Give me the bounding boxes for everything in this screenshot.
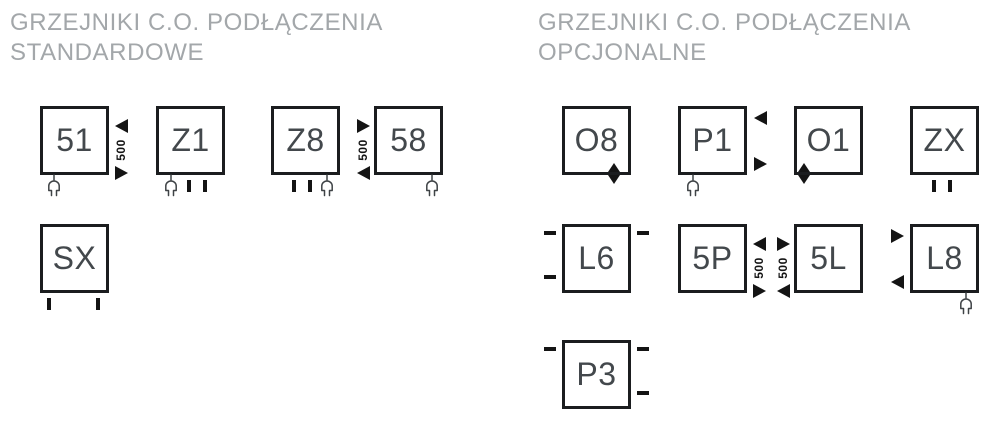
box-zx-label: ZX (924, 122, 966, 159)
dimension-value: 500 (774, 254, 792, 281)
optional-title-line1: GRZEJNIKI C.O. PODŁĄCZENIA (538, 8, 911, 38)
dimension-marker-500: 500 (774, 237, 792, 298)
box-5l-label: 5L (810, 240, 847, 277)
updown-arrows (798, 163, 810, 184)
arrow-left-icon (777, 284, 790, 298)
radiator-outline: P1 (678, 106, 747, 175)
connection-tick (932, 180, 936, 192)
box-l6: L6 (562, 224, 631, 293)
arrow-right-icon (777, 237, 790, 251)
dimension-marker-500: 500 (112, 119, 130, 180)
arrow-left-icon (891, 275, 904, 289)
dimension-value: 500 (112, 136, 130, 163)
side-connection-tick (637, 347, 649, 351)
arrow-left-icon (753, 237, 766, 251)
box-5l: 5L 500 (794, 224, 863, 293)
side-connection-tick (544, 231, 556, 235)
radiator-connections-diagram: { "titles": { "standard": { "line1": "GR… (0, 0, 1000, 435)
box-sx: SX (40, 224, 109, 293)
box-o8-label: O8 (575, 122, 619, 159)
arrow-right-icon (891, 229, 904, 243)
box-z1-label: Z1 (171, 122, 209, 159)
connection-tick (292, 180, 296, 192)
arrow-up-icon (608, 163, 620, 172)
arrow-left-icon (754, 111, 767, 125)
connection-tick (47, 298, 51, 310)
side-connection-tick (637, 391, 649, 395)
standard-title-line1: GRZEJNIKI C.O. PODŁĄCZENIA (10, 8, 383, 38)
box-58: 58 500 (374, 106, 443, 175)
connection-tick (203, 180, 207, 192)
arrow-left-icon (357, 166, 370, 180)
dimension-value: 500 (750, 254, 768, 281)
standard-title-line2: STANDARDOWE (10, 38, 383, 68)
arrow-down-icon (608, 175, 620, 184)
plug-icon (683, 174, 703, 197)
box-5p: 5P 500 (678, 224, 747, 293)
box-z1: Z1 (156, 106, 225, 175)
connection-tick (96, 298, 100, 310)
radiator-outline: 5P (678, 224, 747, 293)
arrow-right-icon (357, 119, 370, 133)
radiator-outline: 5L (794, 224, 863, 293)
box-zx: ZX (910, 106, 979, 175)
dimension-marker-500: 500 (354, 119, 372, 180)
radiator-outline: O8 (562, 106, 631, 175)
box-o1-label: O1 (807, 122, 851, 159)
radiator-outline: ZX (910, 106, 979, 175)
box-5p-label: 5P (692, 240, 732, 277)
radiator-outline: Z1 (156, 106, 225, 175)
arrow-right-icon (754, 157, 767, 171)
plug-icon (422, 174, 442, 197)
arrow-right-icon (115, 166, 128, 180)
box-p1: P1 (678, 106, 747, 175)
connection-tick (948, 180, 952, 192)
updown-arrows (608, 163, 620, 184)
box-l8-label: L8 (926, 240, 963, 277)
radiator-outline: L6 (562, 224, 631, 293)
dimension-marker-500: 500 (750, 237, 768, 298)
box-z8: Z8 (271, 106, 340, 175)
box-l8: L8 (910, 224, 979, 293)
dimension-value: 500 (354, 136, 372, 163)
plug-icon (317, 174, 337, 197)
box-o1: O1 (794, 106, 863, 175)
box-p3-label: P3 (576, 356, 616, 393)
box-58-label: 58 (390, 122, 427, 159)
box-51: 51 500 (40, 106, 109, 175)
box-l6-label: L6 (578, 240, 615, 277)
box-z8-label: Z8 (286, 122, 324, 159)
plug-icon (161, 174, 181, 197)
optional-section-title: GRZEJNIKI C.O. PODŁĄCZENIA OPCJONALNE (538, 8, 911, 68)
side-connection-tick (637, 231, 649, 235)
plug-icon (956, 292, 976, 315)
connection-tick (187, 180, 191, 192)
arrow-up-icon (798, 163, 810, 172)
radiator-outline: 58 (374, 106, 443, 175)
arrow-left-icon (115, 119, 128, 133)
radiator-outline: Z8 (271, 106, 340, 175)
plug-icon (44, 174, 64, 197)
radiator-outline: 51 (40, 106, 109, 175)
standard-section-title: GRZEJNIKI C.O. PODŁĄCZENIA STANDARDOWE (10, 8, 383, 68)
box-p1-label: P1 (692, 122, 732, 159)
box-51-label: 51 (56, 122, 93, 159)
arrow-down-icon (798, 175, 810, 184)
side-connection-tick (544, 347, 556, 351)
box-p3: P3 (562, 340, 631, 409)
radiator-outline: SX (40, 224, 109, 293)
radiator-outline: L8 (910, 224, 979, 293)
radiator-outline: P3 (562, 340, 631, 409)
box-o8: O8 (562, 106, 631, 175)
side-connection-tick (544, 275, 556, 279)
connection-tick (308, 180, 312, 192)
optional-title-line2: OPCJONALNE (538, 38, 911, 68)
box-sx-label: SX (53, 240, 97, 277)
arrow-right-icon (753, 284, 766, 298)
